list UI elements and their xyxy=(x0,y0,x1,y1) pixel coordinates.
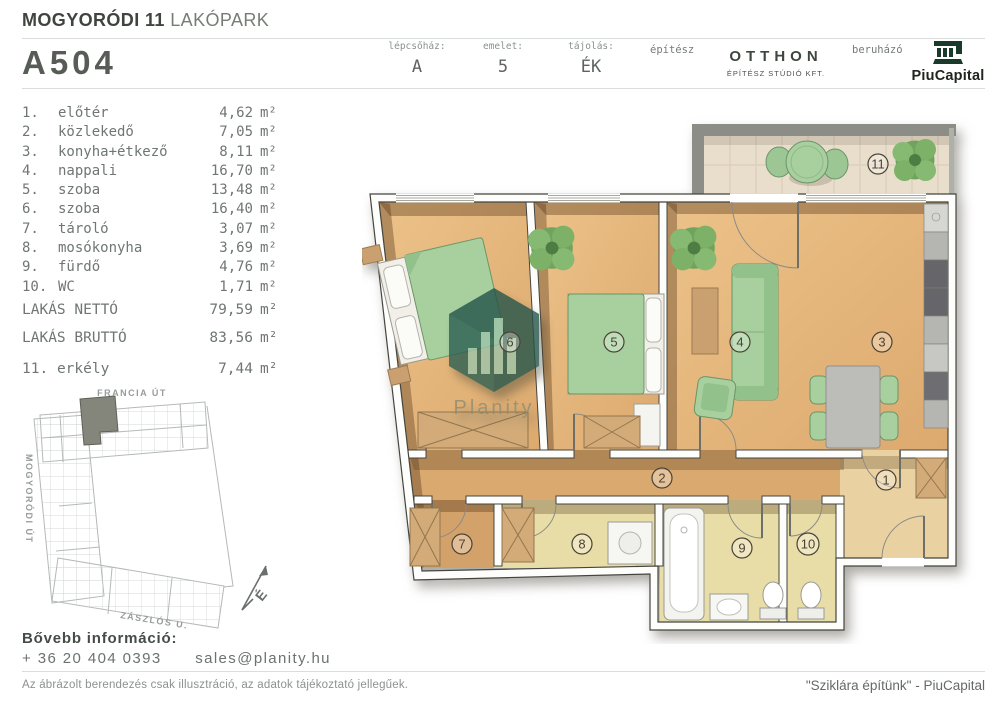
balcony-table xyxy=(786,141,828,183)
meta-staircase-value: A xyxy=(372,57,462,77)
room-row: 10.WC1,71m² xyxy=(22,278,290,297)
window-room6 xyxy=(396,194,474,203)
north-label: É xyxy=(252,587,270,604)
meta-orientation: tájolás: ÉK xyxy=(546,41,636,77)
chair xyxy=(810,376,828,404)
room-unit: m² xyxy=(253,278,290,297)
room-row: 8.mosókonyha3,69m² xyxy=(22,239,290,258)
dining-table xyxy=(826,366,880,448)
room-label-6: 6 xyxy=(500,332,520,352)
room-num: 7. xyxy=(22,220,58,239)
footer-divider xyxy=(22,671,985,672)
room-unit: m² xyxy=(253,239,290,258)
washing-machine xyxy=(608,522,652,564)
total-gross-label: LAKÁS BRUTTÓ xyxy=(22,324,197,352)
balcony-num: 11. xyxy=(22,361,48,377)
bathroom-sink xyxy=(710,594,748,620)
piucapital-icon xyxy=(931,40,965,67)
room-unit: m² xyxy=(253,162,290,181)
kitchen-counter xyxy=(924,204,948,428)
room-unit: m² xyxy=(253,200,290,219)
total-gross-area: 83,56 xyxy=(197,324,253,352)
svg-text:6: 6 xyxy=(506,335,513,350)
chair xyxy=(880,376,898,404)
window-room3 xyxy=(806,194,926,203)
wardrobe xyxy=(916,458,946,498)
svg-text:8: 8 xyxy=(578,537,585,552)
plant-icon xyxy=(670,226,716,271)
svg-text:7: 7 xyxy=(458,537,465,552)
wardrobe xyxy=(410,508,440,566)
developer-label: beruházó xyxy=(852,44,903,56)
chair xyxy=(810,412,828,440)
plant-icon xyxy=(893,139,937,181)
balcony-unit: m² xyxy=(253,355,290,383)
room-unit: m² xyxy=(253,123,290,142)
room-num: 6. xyxy=(22,200,58,219)
svg-text:1: 1 xyxy=(882,473,889,488)
site-map: FRANCIA ÚT MOGYORÓDI ÚT ZÁSZLÓS U. É xyxy=(12,386,297,632)
room-unit: m² xyxy=(253,104,290,123)
room-unit: m² xyxy=(253,220,290,239)
room-label-2: 2 xyxy=(652,468,672,488)
room-list: 1.előtér4,62m² 2.közlekedő7,05m² 3.konyh… xyxy=(22,104,290,297)
svg-text:11: 11 xyxy=(871,157,885,172)
header-divider-bottom xyxy=(22,88,985,89)
room-num: 2. xyxy=(22,123,58,142)
street-label-mogyorodi-ut: MOGYORÓDI ÚT xyxy=(24,454,35,544)
room-label-9: 9 xyxy=(732,538,752,558)
room-label-8: 8 xyxy=(572,534,592,554)
contact-line: + 36 20 404 0393 sales@planity.hu xyxy=(22,650,331,667)
project-name-light: LAKÓPARK xyxy=(170,10,269,30)
plant-icon xyxy=(528,226,574,271)
room-num: 9. xyxy=(22,258,58,277)
room-label-4: 4 xyxy=(730,332,750,352)
room-row: 7.tároló3,07m² xyxy=(22,220,290,239)
room-num: 5. xyxy=(22,181,58,200)
balcony-name: erkély xyxy=(57,361,109,377)
pillow xyxy=(646,298,661,342)
room-row: 6.szoba16,40m² xyxy=(22,200,290,219)
room-area: 3,69 xyxy=(197,239,253,258)
balcony-area xyxy=(692,124,956,196)
balcony-row: 11. erkély7,44m² xyxy=(22,355,290,383)
street-label-francia-ut: FRANCIA ÚT xyxy=(97,387,167,398)
room-num: 8. xyxy=(22,239,58,258)
svg-text:3: 3 xyxy=(878,335,885,350)
meta-floor: emelet: 5 xyxy=(458,41,548,77)
wardrobe xyxy=(502,508,534,562)
planity-watermark: Planity xyxy=(449,288,539,419)
footer-quote: "Sziklára építünk" - PiuCapital xyxy=(806,678,985,693)
meta-floor-label: emelet: xyxy=(458,41,548,52)
balcony-label: 11. erkély xyxy=(22,355,197,383)
room-label-11: 11 xyxy=(868,154,888,174)
site-map-boundary xyxy=(207,406,233,587)
room-num: 4. xyxy=(22,162,58,181)
room-area: 16,70 xyxy=(197,162,253,181)
room-label-7: 7 xyxy=(452,534,472,554)
room-row: 9.fürdő4,76m² xyxy=(22,258,290,277)
meta-staircase: lépcsőház: A xyxy=(372,41,462,77)
header-divider-top xyxy=(22,38,985,39)
room-area: 4,62 xyxy=(197,104,253,123)
room-name: fürdő xyxy=(58,258,197,277)
tv-cabinet xyxy=(692,288,718,354)
window-room5 xyxy=(548,194,620,203)
developer-name: PiuCapital xyxy=(908,68,988,84)
room-name: közlekedő xyxy=(58,123,197,142)
room-row: 5.szoba13,48m² xyxy=(22,181,290,200)
room-name: előtér xyxy=(58,104,197,123)
room-name: mosókonyha xyxy=(58,239,197,258)
contact-email[interactable]: sales@planity.hu xyxy=(195,650,331,667)
room-area: 4,76 xyxy=(197,258,253,277)
total-net-unit: m² xyxy=(253,296,290,324)
room-area: 16,40 xyxy=(197,200,253,219)
room-row: 2.közlekedő7,05m² xyxy=(22,123,290,142)
room-label-5: 5 xyxy=(604,332,624,352)
developer-logo: PiuCapital xyxy=(908,40,988,84)
unit-id: A504 xyxy=(22,44,117,82)
room-row: 3.konyha+étkező8,11m² xyxy=(22,143,290,162)
room-name: tároló xyxy=(58,220,197,239)
architect-label: építész xyxy=(650,44,694,56)
meta-orientation-label: tájolás: xyxy=(546,41,636,52)
svg-text:4: 4 xyxy=(736,335,743,350)
room-name: konyha+étkező xyxy=(58,143,197,162)
armchair xyxy=(693,376,736,421)
contact-phone[interactable]: + 36 20 404 0393 xyxy=(22,650,162,667)
room-row: 4.nappali16,70m² xyxy=(22,162,290,181)
footer-disclaimer: Az ábrázolt berendezés csak illusztráció… xyxy=(22,679,408,691)
room-area: 7,05 xyxy=(197,123,253,142)
room-unit: m² xyxy=(253,258,290,277)
room-label-1: 1 xyxy=(876,470,896,490)
total-net-label: LAKÁS NETTÓ xyxy=(22,296,197,324)
architect-logo: OTTHON ÉPÍTÉSZ STÚDIÓ KFT. xyxy=(706,48,846,78)
room-unit: m² xyxy=(253,181,290,200)
total-gross-unit: m² xyxy=(253,324,290,352)
meta-orientation-value: ÉK xyxy=(546,57,636,77)
room-num: 1. xyxy=(22,104,58,123)
room-name: nappali xyxy=(58,162,197,181)
contact-heading: Bővebb információ: xyxy=(22,630,177,647)
bathtub xyxy=(664,508,704,620)
wardrobe xyxy=(584,416,640,448)
room-num: 3. xyxy=(22,143,58,162)
page-title: MOGYORÓDI 11 LAKÓPARK xyxy=(22,10,269,31)
svg-text:2: 2 xyxy=(658,471,665,486)
svg-text:5: 5 xyxy=(610,335,617,350)
balcony-area: 7,44 xyxy=(197,355,253,383)
room-unit: m² xyxy=(253,143,290,162)
room-name: szoba xyxy=(58,200,197,219)
architect-subtitle: ÉPÍTÉSZ STÚDIÓ KFT. xyxy=(706,69,846,78)
room-name: szoba xyxy=(58,181,197,200)
room-area: 8,11 xyxy=(197,143,253,162)
room-row: 1.előtér4,62m² xyxy=(22,104,290,123)
svg-text:9: 9 xyxy=(738,541,745,556)
pillow xyxy=(646,348,661,392)
architect-name: OTTHON xyxy=(706,48,846,65)
floor-plan: Planity 1 2 3 4 5 6 7 8 9 10 11 xyxy=(362,98,998,644)
room-area: 1,71 xyxy=(197,278,253,297)
project-name-bold: MOGYORÓDI 11 xyxy=(22,10,165,30)
chair xyxy=(880,412,898,440)
room-label-3: 3 xyxy=(872,332,892,352)
room-label-10: 10 xyxy=(797,533,819,555)
meta-floor-value: 5 xyxy=(458,57,548,77)
room-name: WC xyxy=(58,278,197,297)
room-num: 10. xyxy=(22,278,58,297)
svg-text:10: 10 xyxy=(801,537,815,552)
meta-staircase-label: lépcsőház: xyxy=(372,41,462,52)
total-gross-row: LAKÁS BRUTTÓ83,56m² xyxy=(22,324,290,352)
total-net-row: LAKÁS NETTÓ79,59m² xyxy=(22,296,290,324)
room-area: 13,48 xyxy=(197,181,253,200)
room-area: 3,07 xyxy=(197,220,253,239)
watermark-text: Planity xyxy=(453,397,534,419)
total-net-area: 79,59 xyxy=(197,296,253,324)
area-totals: LAKÁS NETTÓ79,59m² LAKÁS BRUTTÓ83,56m² 1… xyxy=(22,296,290,383)
